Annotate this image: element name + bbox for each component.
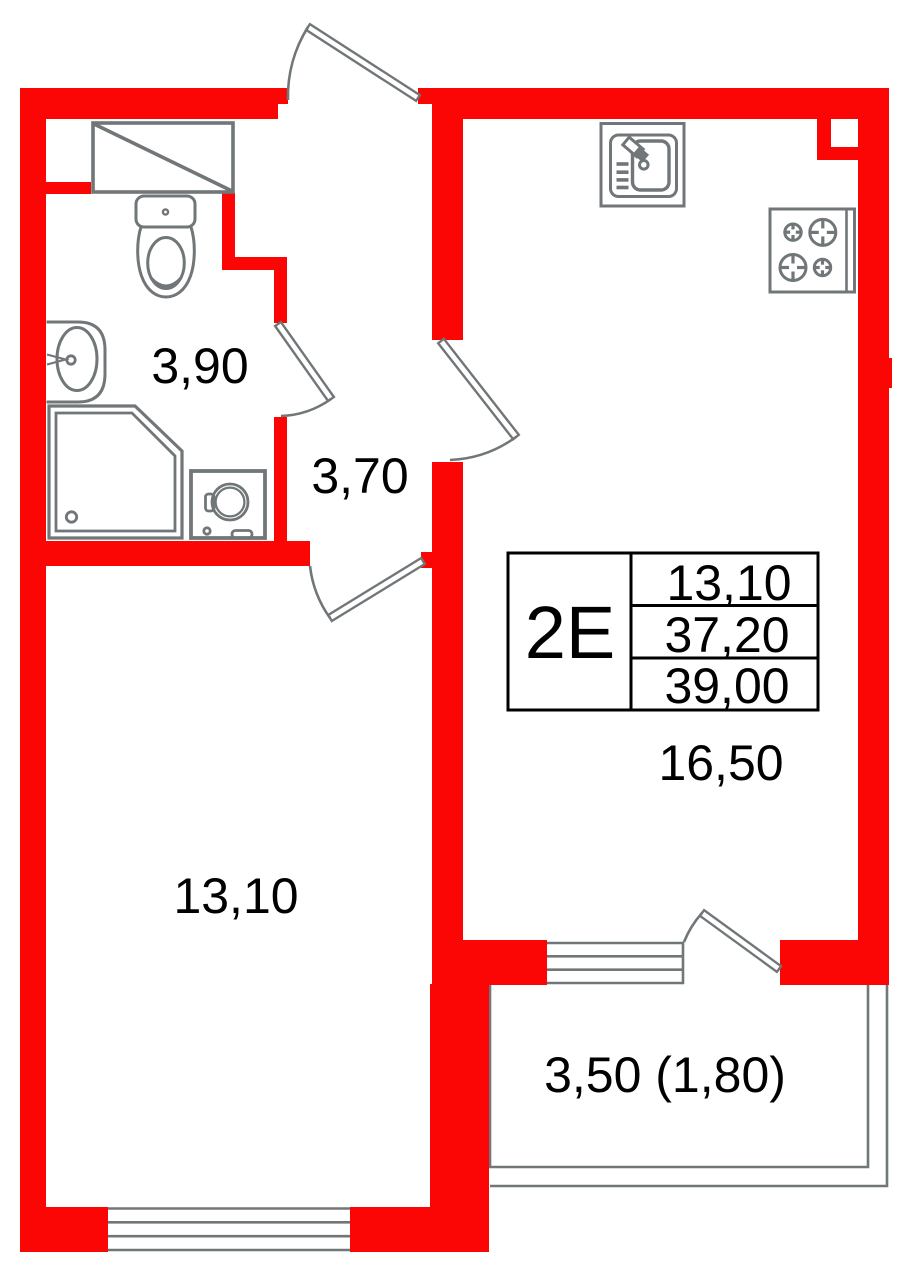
svg-text:3,90: 3,90 [151, 338, 248, 394]
svg-text:3,50 (1,80): 3,50 (1,80) [544, 1047, 786, 1103]
svg-text:37,20: 37,20 [664, 607, 789, 663]
svg-text:16,50: 16,50 [658, 735, 783, 791]
svg-text:39,00: 39,00 [664, 658, 789, 714]
svg-text:2E: 2E [525, 591, 616, 674]
svg-text:13,10: 13,10 [173, 868, 298, 924]
svg-text:13,10: 13,10 [666, 555, 791, 611]
svg-text:3,70: 3,70 [311, 448, 408, 504]
